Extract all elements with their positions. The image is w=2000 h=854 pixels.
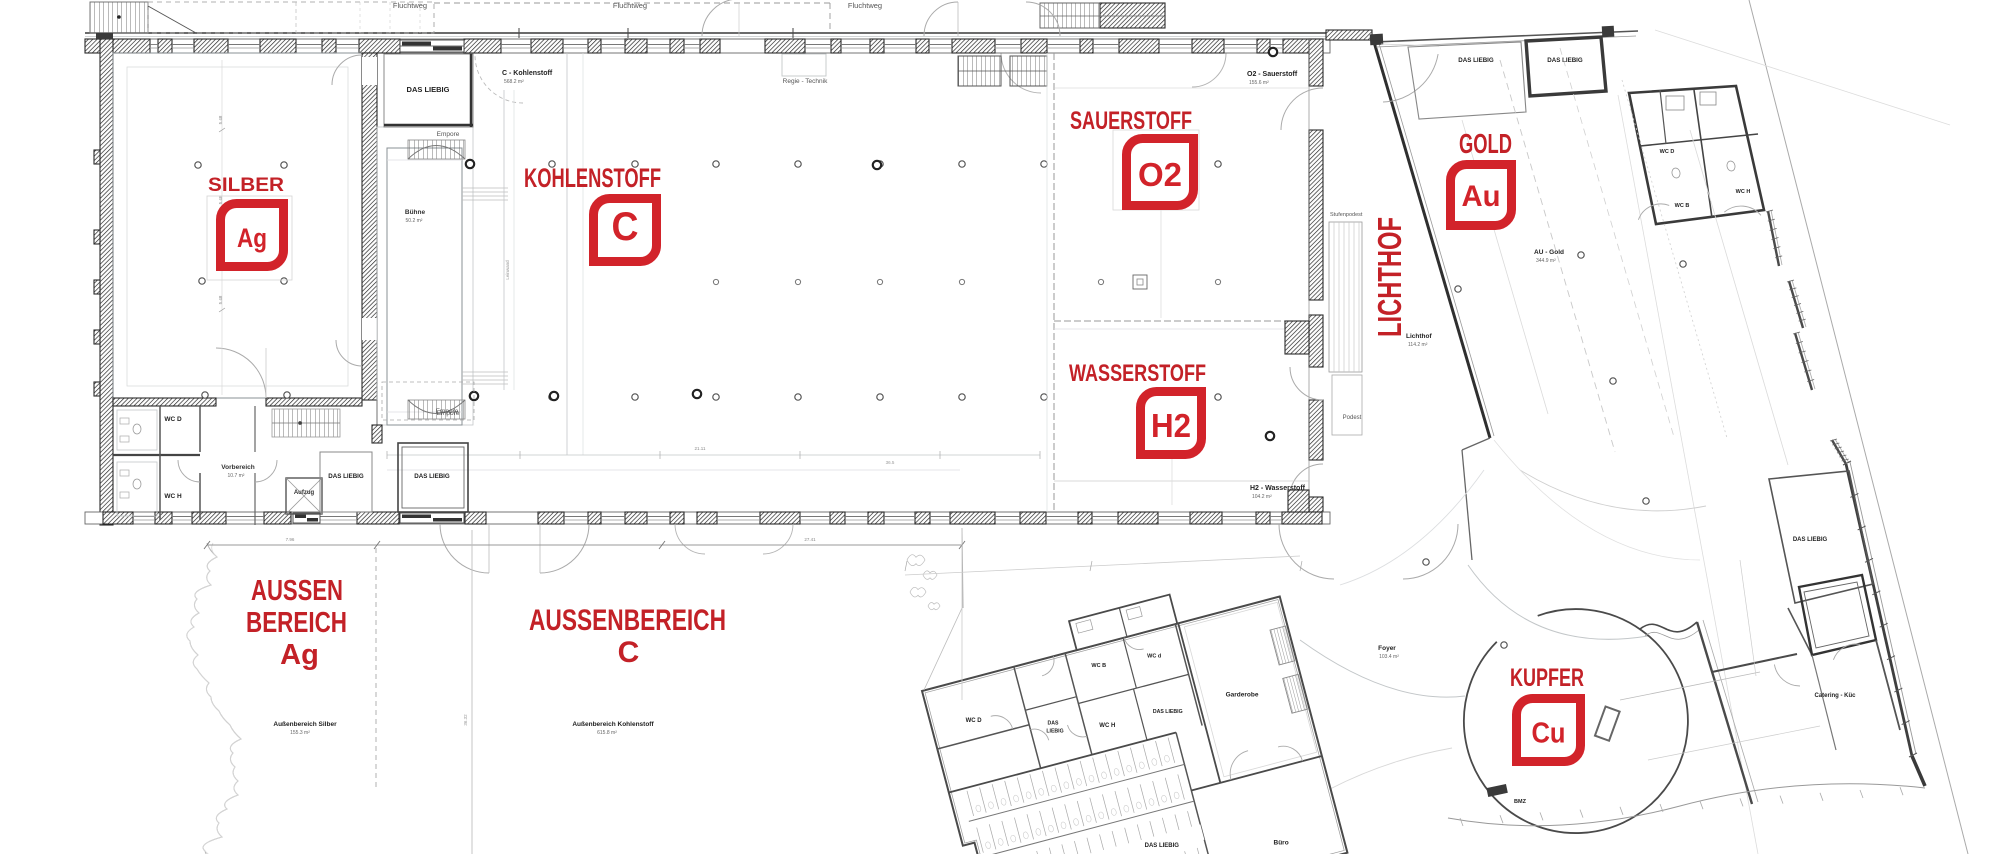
- svg-text:DAS LIEBIG: DAS LIEBIG: [1145, 843, 1180, 849]
- svg-text:BMZ: BMZ: [1514, 799, 1527, 805]
- svg-text:C: C: [618, 636, 640, 669]
- svg-text:O2: O2: [1138, 156, 1182, 193]
- svg-text:Außenbereich Kohlenstoff: Außenbereich Kohlenstoff: [572, 721, 654, 728]
- svg-text:Podest: Podest: [1343, 415, 1362, 421]
- svg-text:Catering - Küc: Catering - Küc: [1814, 693, 1856, 699]
- svg-text:KUPFER: KUPFER: [1510, 664, 1584, 692]
- svg-text:21.11: 21.11: [695, 446, 706, 451]
- svg-text:50.2 m²: 50.2 m²: [406, 218, 423, 224]
- svg-text:DAS LIEBIG: DAS LIEBIG: [414, 473, 450, 480]
- svg-text:344.9 m²: 344.9 m²: [1536, 258, 1556, 264]
- svg-text:Bühne: Bühne: [405, 209, 426, 216]
- svg-text:Fluchtweg: Fluchtweg: [393, 1, 427, 10]
- svg-text:Cu: Cu: [1532, 718, 1566, 750]
- svg-text:WC B: WC B: [1675, 203, 1690, 209]
- svg-text:DAS LIEBIG: DAS LIEBIG: [407, 85, 450, 94]
- svg-text:Büro: Büro: [1274, 839, 1289, 846]
- svg-text:Lichthof: Lichthof: [1406, 333, 1432, 340]
- svg-text:Leinwand: Leinwand: [505, 260, 510, 280]
- svg-text:568.2 m²: 568.2 m²: [504, 79, 524, 85]
- svg-text:LICHTHOF: LICHTHOF: [1372, 217, 1409, 337]
- svg-text:DAS LIEBIG: DAS LIEBIG: [1153, 709, 1183, 715]
- svg-text:36.32: 36.32: [463, 714, 468, 726]
- svg-text:WC H: WC H: [1736, 189, 1751, 195]
- svg-text:Ag: Ag: [237, 223, 267, 253]
- svg-text:GOLD: GOLD: [1459, 128, 1512, 159]
- svg-text:C - Kohlenstoff: C - Kohlenstoff: [502, 70, 553, 77]
- svg-text:5.48: 5.48: [218, 115, 223, 124]
- svg-text:7.96: 7.96: [286, 537, 295, 542]
- svg-text:WC H: WC H: [1099, 723, 1115, 729]
- svg-text:5.48: 5.48: [218, 295, 223, 304]
- svg-text:LIEBIG: LIEBIG: [1046, 728, 1063, 734]
- svg-text:114.2 m²: 114.2 m²: [1408, 342, 1428, 348]
- svg-text:5.48: 5.48: [218, 195, 223, 204]
- svg-text:DAS LIEBIG: DAS LIEBIG: [1458, 57, 1494, 64]
- svg-text:DAS LIEBIG: DAS LIEBIG: [1793, 537, 1828, 543]
- svg-text:WC H: WC H: [164, 493, 182, 500]
- svg-text:Garderobe: Garderobe: [1226, 691, 1259, 698]
- svg-text:Vorbereich: Vorbereich: [221, 464, 255, 471]
- svg-text:KOHLENSTOFF: KOHLENSTOFF: [524, 163, 661, 193]
- svg-text:WASSERSTOFF: WASSERSTOFF: [1069, 360, 1206, 387]
- svg-text:AUSSEN: AUSSEN: [251, 575, 343, 607]
- svg-text:Fluchtweg: Fluchtweg: [613, 1, 647, 10]
- svg-text:AU - Gold: AU - Gold: [1534, 249, 1564, 256]
- svg-text:WC d: WC d: [1147, 654, 1161, 660]
- svg-text:H2 - Wasserstoff: H2 - Wasserstoff: [1250, 485, 1306, 492]
- svg-text:Au: Au: [1462, 180, 1501, 213]
- svg-text:615.8 m²: 615.8 m²: [597, 730, 617, 736]
- svg-text:27.41: 27.41: [804, 537, 816, 542]
- svg-text:WC D: WC D: [164, 416, 182, 423]
- svg-text:Regie - Technik: Regie - Technik: [783, 78, 828, 85]
- svg-text:SILBER: SILBER: [208, 174, 284, 196]
- svg-text:Aufzug: Aufzug: [294, 490, 315, 496]
- svg-text:BEREICH: BEREICH: [246, 607, 347, 639]
- svg-text:103.4 m²: 103.4 m²: [1379, 654, 1399, 660]
- svg-text:Fluchtweg: Fluchtweg: [848, 1, 882, 10]
- svg-text:155.6 m²: 155.6 m²: [1249, 80, 1269, 86]
- svg-text:Stufenpodest: Stufenpodest: [1330, 212, 1363, 218]
- svg-text:C: C: [612, 205, 639, 249]
- svg-text:DAS: DAS: [1047, 721, 1058, 727]
- svg-text:155.3 m²: 155.3 m²: [290, 730, 310, 736]
- svg-text:O2 - Sauerstoff: O2 - Sauerstoff: [1247, 71, 1298, 78]
- svg-text:Foyer: Foyer: [1378, 645, 1396, 652]
- svg-text:H2: H2: [1151, 407, 1191, 444]
- svg-text:WC D: WC D: [966, 718, 983, 724]
- svg-text:Empore: Empore: [437, 131, 460, 138]
- svg-text:36.5: 36.5: [886, 460, 895, 465]
- svg-text:Außenbereich Silber: Außenbereich Silber: [273, 721, 337, 728]
- svg-text:AUSSENBEREICH: AUSSENBEREICH: [529, 604, 726, 637]
- svg-text:10.7 m²: 10.7 m²: [228, 473, 245, 479]
- svg-text:DAS LIEBIG: DAS LIEBIG: [1547, 57, 1583, 64]
- svg-text:Empore: Empore: [436, 408, 459, 415]
- svg-text:SAUERSTOFF: SAUERSTOFF: [1070, 107, 1192, 135]
- svg-text:104.2 m²: 104.2 m²: [1252, 494, 1272, 500]
- svg-text:WC D: WC D: [1660, 149, 1675, 155]
- svg-text:Ag: Ag: [280, 639, 319, 671]
- svg-text:WC B: WC B: [1091, 663, 1106, 669]
- svg-text:DAS LIEBIG: DAS LIEBIG: [328, 473, 364, 480]
